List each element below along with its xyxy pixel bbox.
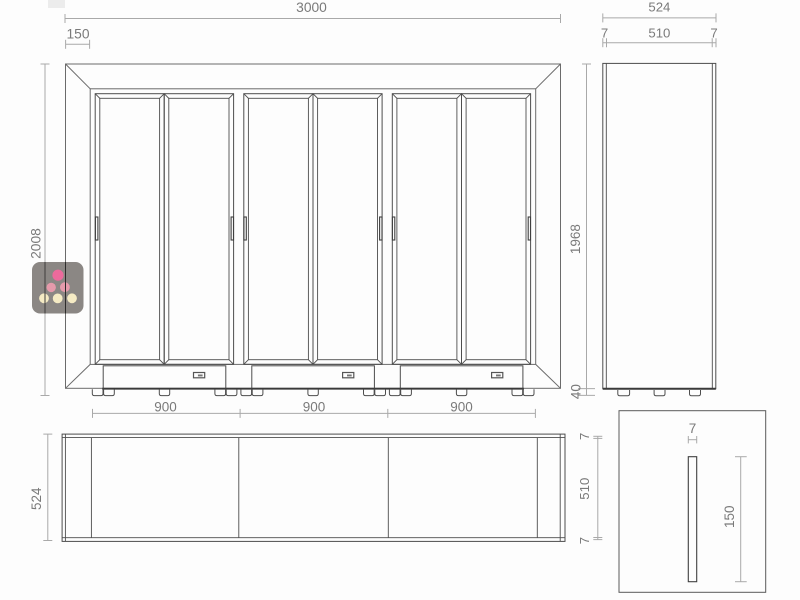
svg-text:7: 7 <box>689 421 697 436</box>
svg-text:7: 7 <box>577 537 592 544</box>
svg-text:900: 900 <box>450 400 473 415</box>
svg-text:7: 7 <box>710 26 717 41</box>
svg-text:40: 40 <box>569 384 584 399</box>
svg-text:900: 900 <box>154 400 177 415</box>
svg-text:524: 524 <box>29 487 44 510</box>
svg-text:510: 510 <box>577 478 592 500</box>
svg-text:510: 510 <box>648 26 670 41</box>
svg-text:3000: 3000 <box>296 0 327 15</box>
svg-text:1968: 1968 <box>568 224 583 254</box>
svg-text:900: 900 <box>303 400 326 415</box>
svg-text:7: 7 <box>577 433 592 440</box>
svg-text:150: 150 <box>722 505 737 528</box>
svg-text:150: 150 <box>66 26 89 41</box>
svg-text:7: 7 <box>601 26 608 41</box>
svg-text:524: 524 <box>648 0 670 15</box>
svg-text:2008: 2008 <box>28 228 43 259</box>
